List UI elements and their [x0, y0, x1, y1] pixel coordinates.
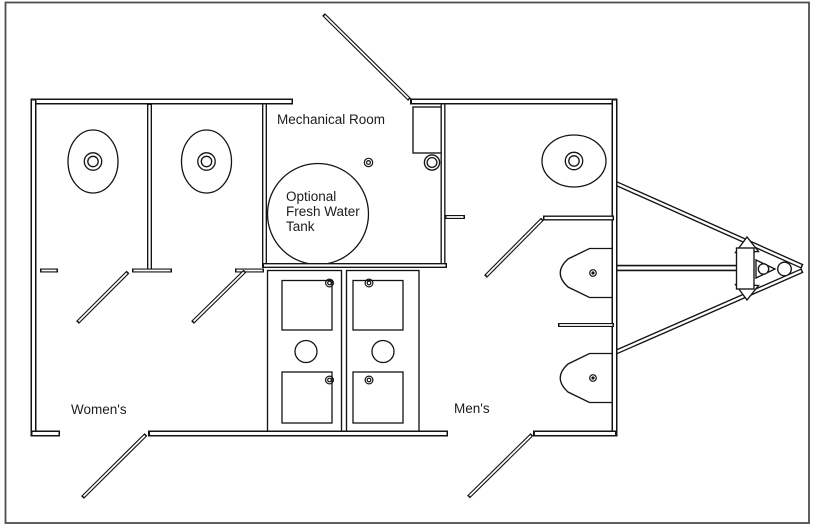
hitch-coupler — [778, 262, 792, 276]
water-heater — [413, 107, 442, 153]
mechanical-room-door — [324, 15, 410, 100]
womens-stall-door-2 — [193, 271, 246, 323]
mens-entry-door — [469, 435, 533, 498]
womens-room-label: Women's — [71, 402, 127, 417]
page-border — [6, 3, 810, 524]
urinal-1 — [560, 249, 613, 298]
supply-pipe-icon — [424, 155, 439, 170]
tank-label-line-2: Fresh Water — [286, 204, 360, 219]
mens-stall-door — [486, 219, 543, 277]
urinal-2 — [560, 354, 613, 403]
womens-toilet-1 — [68, 130, 118, 193]
mens-room-label: Men's — [454, 401, 490, 416]
mechanical-room-label: Mechanical Room — [277, 112, 385, 127]
floor-drain-icon — [364, 158, 372, 166]
tank-label-line-3: Tank — [286, 219, 360, 234]
tank-label: Optional Fresh Water Tank — [286, 189, 360, 234]
sink-counter-left — [268, 271, 342, 433]
mens-toilet — [542, 135, 606, 187]
womens-toilet-2 — [182, 130, 232, 193]
tank-label-line-1: Optional — [286, 189, 360, 204]
floor-plan-page: Mechanical Room Optional Fresh Water Tan… — [0, 0, 813, 530]
sink-counter-right — [347, 271, 420, 433]
interior-walls — [150, 103, 615, 270]
womens-entry-door — [83, 435, 147, 498]
womens-stall-door-1 — [78, 272, 129, 323]
trailer-tongue — [615, 183, 803, 353]
tongue-jack — [736, 237, 776, 300]
floor-plan-drawing — [0, 0, 813, 530]
